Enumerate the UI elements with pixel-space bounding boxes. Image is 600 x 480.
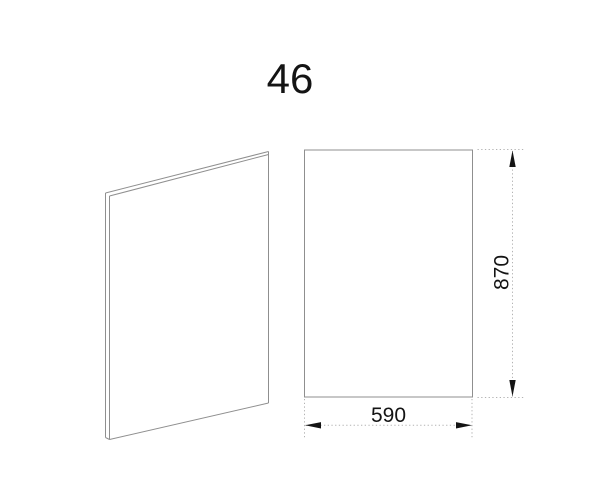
height-dimension-label: 870: [491, 255, 514, 290]
height-arrow-up-icon: [509, 151, 515, 168]
width-dimension-label: 590: [371, 404, 406, 427]
panel-isometric-view: [106, 152, 269, 440]
width-arrow-right-icon: [456, 422, 472, 428]
width-dimension: 590: [305, 399, 473, 439]
page-number: 46: [267, 55, 314, 102]
technical-drawing: 46 870: [0, 0, 600, 480]
panel-bottom-edge: [110, 403, 269, 440]
panel-front-top-edge: [110, 155, 269, 197]
panel-bottom-left-corner-edge: [106, 438, 110, 440]
height-dimension: 870: [478, 150, 524, 398]
drawing-page: 46 870: [0, 0, 600, 480]
panel-back-top-edge: [106, 152, 269, 194]
panel-front-view: [305, 150, 473, 397]
height-arrow-down-icon: [509, 380, 515, 397]
panel-front-face: [305, 150, 473, 397]
width-arrow-left-icon: [305, 422, 321, 428]
